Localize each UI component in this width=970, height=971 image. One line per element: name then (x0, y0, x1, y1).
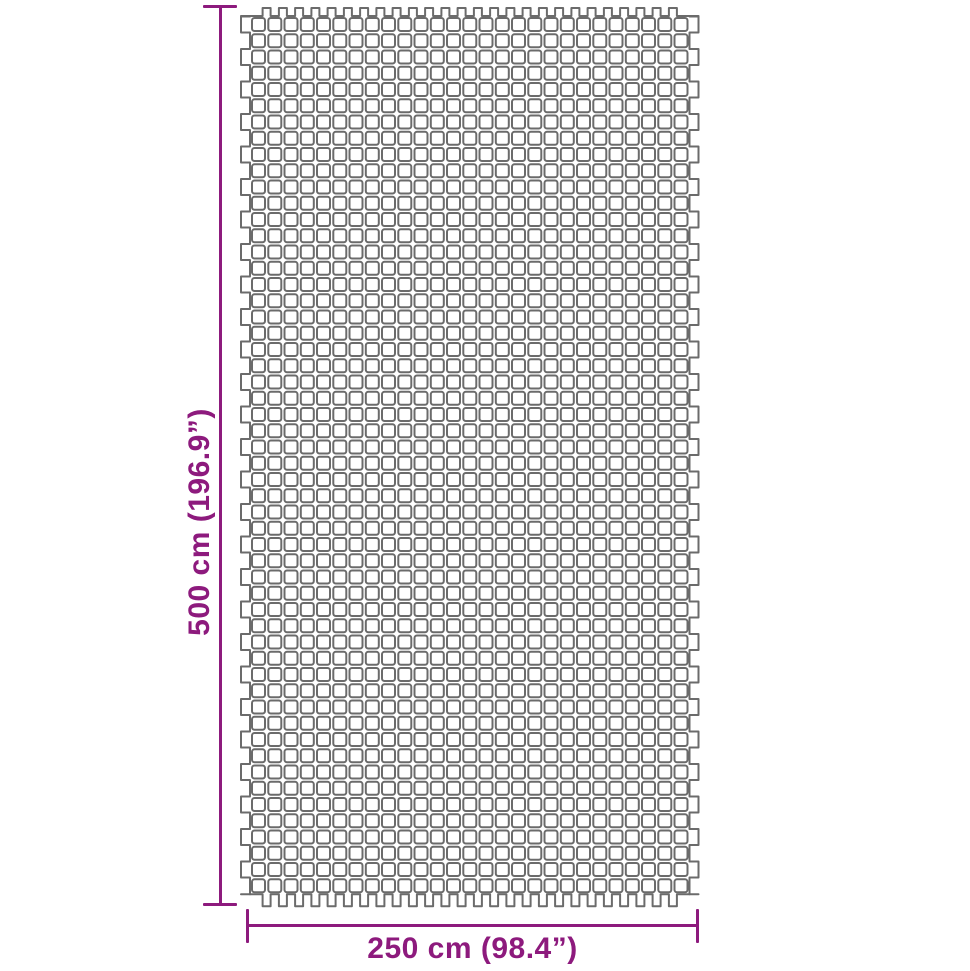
height-dimension-line (219, 6, 222, 906)
width-dimension-line (247, 924, 698, 927)
height-dimension-cap-top (203, 5, 237, 8)
mat-mesh-graphic (0, 0, 970, 971)
dimension-diagram: 500 cm (196.9”) 250 cm (98.4”) (0, 0, 970, 971)
height-dimension-cap-bottom (203, 903, 237, 906)
width-dimension-label: 250 cm (98.4”) (247, 932, 698, 966)
height-dimension-label: 500 cm (196.9”) (182, 342, 218, 702)
